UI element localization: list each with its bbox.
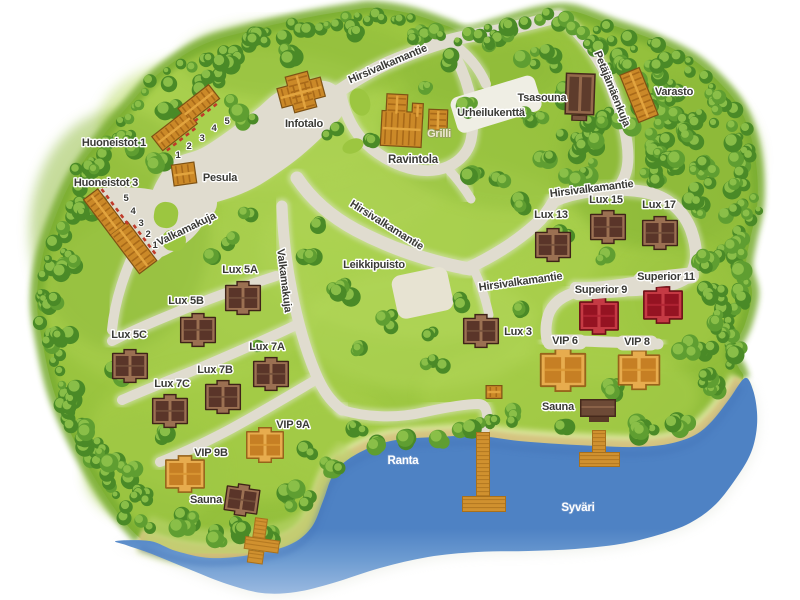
svg-text:2: 2 — [145, 229, 150, 240]
svg-text:Lux 3: Lux 3 — [504, 326, 532, 338]
svg-text:3: 3 — [199, 133, 204, 144]
svg-text:Ranta: Ranta — [388, 455, 420, 467]
svg-text:Lux 5B: Lux 5B — [168, 295, 204, 307]
svg-text:Superior 9: Superior 9 — [575, 284, 627, 296]
svg-text:3: 3 — [138, 218, 143, 229]
svg-text:Grilli: Grilli — [427, 128, 451, 140]
svg-text:2: 2 — [186, 141, 191, 152]
svg-text:Urheilukenttä: Urheilukenttä — [457, 107, 526, 119]
svg-text:Varasto: Varasto — [655, 86, 694, 98]
svg-text:Superior 11: Superior 11 — [637, 271, 695, 283]
svg-text:Lux 7B: Lux 7B — [197, 364, 233, 376]
svg-text:VIP 9B: VIP 9B — [194, 447, 228, 459]
svg-text:Sauna: Sauna — [542, 401, 575, 413]
svg-text:Lux 5A: Lux 5A — [222, 264, 258, 276]
svg-text:Lux 17: Lux 17 — [642, 199, 676, 211]
svg-text:Pesula: Pesula — [203, 172, 238, 184]
svg-text:Infotalo: Infotalo — [285, 118, 324, 130]
svg-text:Lux 15: Lux 15 — [589, 194, 623, 206]
svg-text:Lux 7A: Lux 7A — [249, 341, 285, 353]
svg-text:Tsasouna: Tsasouna — [518, 92, 568, 104]
svg-text:Syväri: Syväri — [561, 502, 594, 514]
svg-text:Leikkipuisto: Leikkipuisto — [343, 259, 405, 271]
svg-text:Sauna: Sauna — [190, 494, 223, 506]
svg-text:Lux 5C: Lux 5C — [111, 329, 147, 341]
svg-text:Huoneistot 3: Huoneistot 3 — [74, 177, 138, 189]
svg-text:Lux 13: Lux 13 — [534, 209, 568, 221]
svg-text:Huoneistot 1: Huoneistot 1 — [82, 137, 146, 149]
svg-text:VIP 6: VIP 6 — [552, 335, 578, 347]
svg-text:VIP 9A: VIP 9A — [276, 419, 310, 431]
svg-text:Ravintola: Ravintola — [388, 154, 439, 166]
svg-text:Lux 7C: Lux 7C — [154, 378, 190, 390]
svg-text:VIP 8: VIP 8 — [624, 336, 650, 348]
